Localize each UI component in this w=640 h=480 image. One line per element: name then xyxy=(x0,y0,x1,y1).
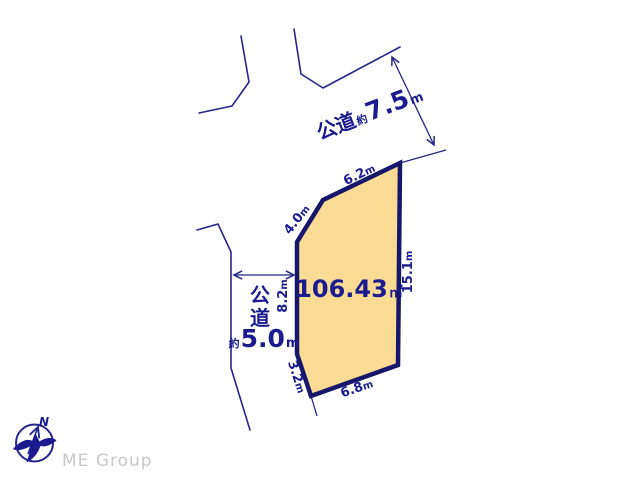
bird-silhouette xyxy=(13,434,57,463)
edge-label-right: 15.1m xyxy=(401,251,416,294)
brand-logo-text: ME Group xyxy=(62,451,153,471)
road-boundary-top-right xyxy=(294,29,400,88)
road-label-left-char1: 公 xyxy=(250,283,270,307)
compass-icon: N xyxy=(13,415,57,463)
extension-line-top-right xyxy=(400,150,446,163)
land-plot-diagram: 106.43㎡ 6.2m 4.0m 8.2m 3.2m 6.8m 15.1m 公… xyxy=(0,0,640,480)
road-label-top: 公道約7.5m xyxy=(312,78,427,145)
edge-label-left: 8.2m xyxy=(276,279,291,312)
compass-north-label: N xyxy=(39,415,49,429)
extension-line-bottom xyxy=(311,396,317,416)
parcel-area-label: 106.43㎡ xyxy=(295,275,403,303)
road-label-left-width: 約5.0m xyxy=(229,324,300,353)
road-boundary-top-left xyxy=(199,36,249,113)
